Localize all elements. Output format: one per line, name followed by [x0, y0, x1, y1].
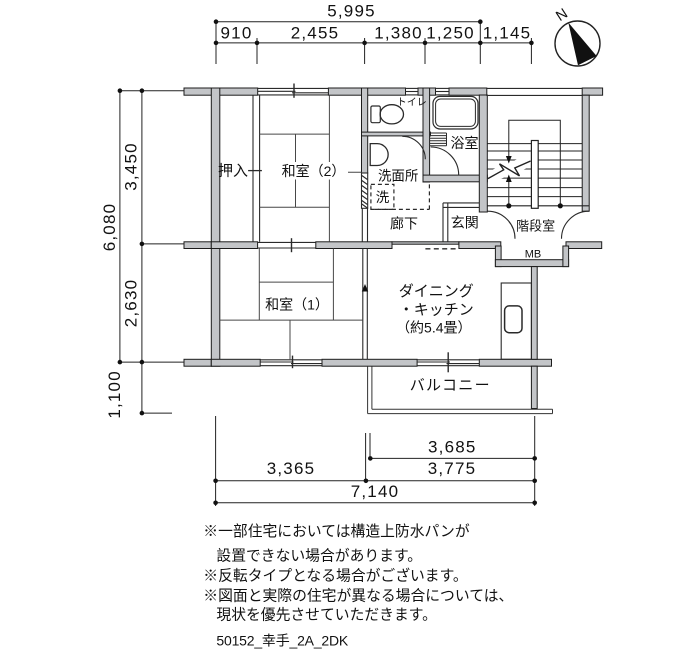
svg-text:※反転タイプとなる場合がございます。: ※反転タイプとなる場合がございます。 [203, 566, 467, 584]
svg-text:1,100: 1,100 [105, 370, 124, 419]
svg-text:現状を優先させていただきます。: 現状を優先させていただきます。 [216, 606, 436, 623]
svg-text:・キッチン: ・キッチン [399, 302, 474, 319]
svg-text:和室（2）: 和室（2） [282, 163, 346, 179]
svg-text:廊下: 廊下 [390, 215, 418, 231]
svg-text:3,775: 3,775 [428, 459, 477, 478]
svg-text:7,140: 7,140 [351, 482, 400, 501]
svg-text:（約5.4畳）: （約5.4畳） [396, 320, 471, 336]
svg-text:3,685: 3,685 [428, 437, 477, 456]
svg-text:ダイニング: ダイニング [399, 283, 474, 300]
svg-text:洗: 洗 [376, 190, 390, 205]
svg-text:MB: MB [525, 249, 542, 261]
svg-text:3,450: 3,450 [121, 142, 140, 191]
svg-text:910: 910 [221, 24, 253, 43]
svg-text:階段室: 階段室 [516, 218, 555, 233]
svg-text:6,080: 6,080 [100, 203, 119, 252]
svg-text:1,250: 1,250 [426, 24, 475, 43]
svg-text:5,995: 5,995 [327, 1, 376, 20]
svg-text:1,145: 1,145 [483, 24, 532, 43]
svg-text:洗面所: 洗面所 [378, 168, 419, 183]
svg-text:2,630: 2,630 [121, 279, 140, 328]
svg-text:浴室: 浴室 [451, 135, 479, 151]
svg-text:2,455: 2,455 [291, 24, 340, 43]
svg-text:設置できない場合があります。: 設置できない場合があります。 [216, 548, 422, 565]
svg-text:玄関: 玄関 [451, 214, 479, 230]
svg-text:※図面と実際の住宅が異なる場合については、: ※図面と実際の住宅が異なる場合については、 [203, 587, 513, 604]
svg-text:トイレ: トイレ [397, 97, 427, 108]
svg-text:バルコニー: バルコニー [410, 377, 491, 394]
svg-text:※一部住宅においては構造上防水パンが: ※一部住宅においては構造上防水パンが [203, 523, 470, 540]
svg-text:1,380: 1,380 [374, 24, 423, 43]
svg-text:押入: 押入 [218, 163, 248, 180]
svg-text:3,365: 3,365 [267, 459, 316, 478]
svg-text:50152_幸手_2A_2DK: 50152_幸手_2A_2DK [216, 633, 349, 649]
svg-text:和室（1）: 和室（1） [265, 296, 329, 312]
